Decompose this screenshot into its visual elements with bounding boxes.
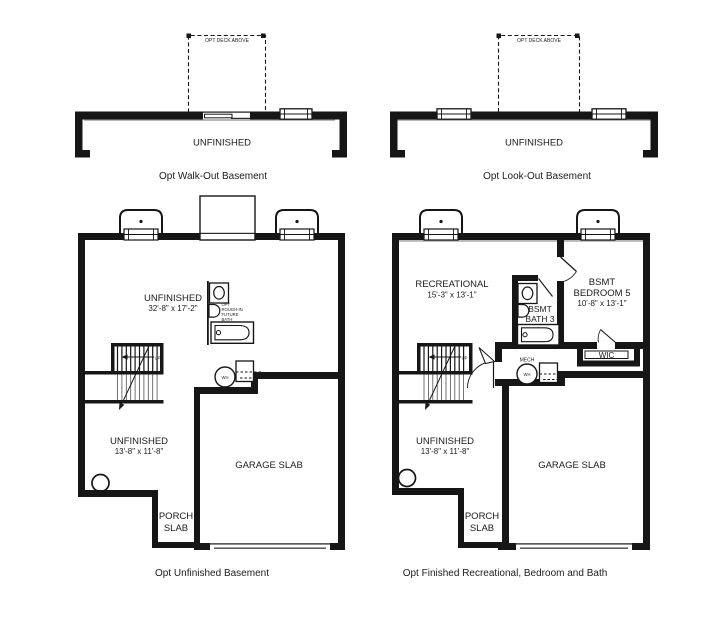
window-left bbox=[437, 109, 471, 119]
staircase: UP bbox=[85, 343, 164, 410]
main-room-dims: 32'-8" x 17'-2" bbox=[148, 304, 197, 313]
lower-room-label: UNFINISHED bbox=[110, 436, 168, 447]
window-well-left bbox=[420, 210, 462, 240]
floorplan-canvas: OPT DECK ABOVE UNFINISHED Opt Walk-Out B… bbox=[0, 0, 712, 617]
door-leaf bbox=[561, 257, 577, 272]
water-heater-label: WH bbox=[222, 375, 229, 380]
bedroom-label-2: BEDROOM 5 bbox=[573, 288, 630, 299]
garage-door-opening bbox=[516, 543, 632, 550]
porch-label-1: PORCH bbox=[465, 511, 499, 522]
deck-outline-dashed bbox=[189, 36, 266, 120]
bedroom-dims: 10'-8" x 13'-1" bbox=[577, 299, 626, 308]
rec-room-dims: 15'-3" x 13'-1" bbox=[427, 291, 476, 300]
hall-door-leaf bbox=[479, 348, 495, 364]
water-heater-label: WH bbox=[524, 372, 531, 377]
bedroom-entry-door bbox=[561, 257, 577, 282]
deck-label: OPT DECK ABOVE bbox=[205, 38, 249, 44]
room-label: UNFINISHED bbox=[193, 138, 251, 149]
sump-pit bbox=[92, 475, 109, 492]
door-line-outer bbox=[516, 543, 632, 544]
wic-closet: WIC bbox=[585, 351, 628, 360]
door-swing-arc bbox=[598, 330, 600, 343]
rec-room-label: RECREATIONAL bbox=[415, 279, 488, 290]
stair-treads-lower bbox=[118, 375, 158, 401]
garage-label: GARAGE SLAB bbox=[235, 460, 303, 471]
plan-caption: Opt Unfinished Basement bbox=[155, 568, 269, 579]
main-room-label: UNFINISHED bbox=[144, 293, 202, 304]
bath-rough-in: OPT ROUGH-IN FUTURE BATH bbox=[207, 281, 254, 345]
areaway-ledge-line bbox=[200, 233, 255, 234]
wic-label: WIC bbox=[599, 351, 615, 360]
mech-label: MECH bbox=[520, 358, 535, 364]
up-label: UP bbox=[155, 356, 161, 361]
deck-outline-dashed bbox=[499, 36, 580, 113]
door-line-inner bbox=[520, 548, 628, 549]
well-drain bbox=[139, 220, 142, 223]
stair-walls bbox=[399, 343, 473, 404]
window-well-right bbox=[276, 210, 318, 240]
stair-treads-upper bbox=[424, 347, 464, 372]
plan-walkout-basement: OPT DECK ABOVE UNFINISHED Opt Walk-Out B… bbox=[75, 34, 347, 183]
door-line-outer bbox=[210, 543, 330, 544]
plan-unfinished-basement: UP OPT ROUGH-IN FUTURE BATH WH UNFINISHE… bbox=[78, 196, 345, 579]
plan-finished-basement: UP BSMT BATH 3 WIC MECH bbox=[392, 210, 650, 579]
door-leaf bbox=[601, 330, 616, 343]
porch-label-2: SLAB bbox=[470, 523, 494, 534]
door-swing-arc bbox=[564, 272, 577, 282]
stair-direction-arrowhead bbox=[425, 403, 430, 411]
porch-label-2: SLAB bbox=[164, 523, 188, 534]
window-right bbox=[592, 109, 626, 119]
bathroom: BSMT BATH 3 bbox=[518, 279, 560, 346]
door-track-line bbox=[231, 118, 250, 119]
door-panel bbox=[205, 114, 233, 118]
plan-lookout-basement: OPT DECK ABOVE UNFINISHED Opt Look-Out B… bbox=[390, 34, 658, 183]
lower-room-dims: 13'-8" x 11'-8" bbox=[115, 447, 164, 456]
sink bbox=[209, 305, 220, 318]
door-line-inner bbox=[214, 548, 326, 549]
wic-door bbox=[598, 330, 615, 343]
plan-caption: Opt Look-Out Basement bbox=[483, 171, 591, 182]
up-arrow-head bbox=[429, 354, 435, 359]
stair-treads-upper bbox=[118, 347, 158, 372]
well-drain bbox=[439, 220, 442, 223]
porch-label-1: PORCH bbox=[159, 511, 193, 522]
staircase: UP bbox=[399, 343, 473, 410]
rough-in-label-4: BATH bbox=[222, 317, 233, 322]
well-drain bbox=[295, 220, 298, 223]
door-head-line bbox=[203, 112, 250, 113]
floorplan-sheet: OPT DECK ABOVE UNFINISHED Opt Walk-Out B… bbox=[0, 0, 712, 617]
window-well-left bbox=[120, 210, 162, 240]
areaway bbox=[200, 196, 255, 240]
stair-direction-arrowhead bbox=[119, 403, 124, 411]
plan-caption: Opt Walk-Out Basement bbox=[159, 171, 267, 182]
bath-door-leaf bbox=[539, 279, 553, 297]
plan-caption: Opt Finished Recreational, Bedroom and B… bbox=[403, 568, 608, 579]
stair-treads-lower bbox=[424, 375, 464, 401]
up-label: UP bbox=[462, 356, 468, 361]
bedroom-label-1: BSMT bbox=[589, 277, 616, 288]
garage-door-opening bbox=[210, 543, 330, 550]
well-drain bbox=[596, 220, 599, 223]
stair-walls bbox=[85, 343, 164, 404]
lower-room-dims: 13'-8" x 11'-8" bbox=[421, 447, 470, 456]
garage-label: GARAGE SLAB bbox=[538, 460, 606, 471]
window-well-right bbox=[577, 210, 619, 240]
bath-label-1: BSMT bbox=[528, 304, 552, 314]
room-label: UNFINISHED bbox=[505, 138, 563, 149]
deck-label: OPT DECK ABOVE bbox=[517, 38, 561, 44]
bath-label-2: BATH 3 bbox=[525, 314, 554, 324]
sump-pit bbox=[399, 470, 416, 487]
areaway-mask bbox=[201, 233, 255, 240]
walls bbox=[78, 233, 345, 550]
sliding-door-opening bbox=[203, 112, 250, 119]
lower-room-label: UNFINISHED bbox=[416, 436, 474, 447]
window bbox=[280, 109, 312, 119]
